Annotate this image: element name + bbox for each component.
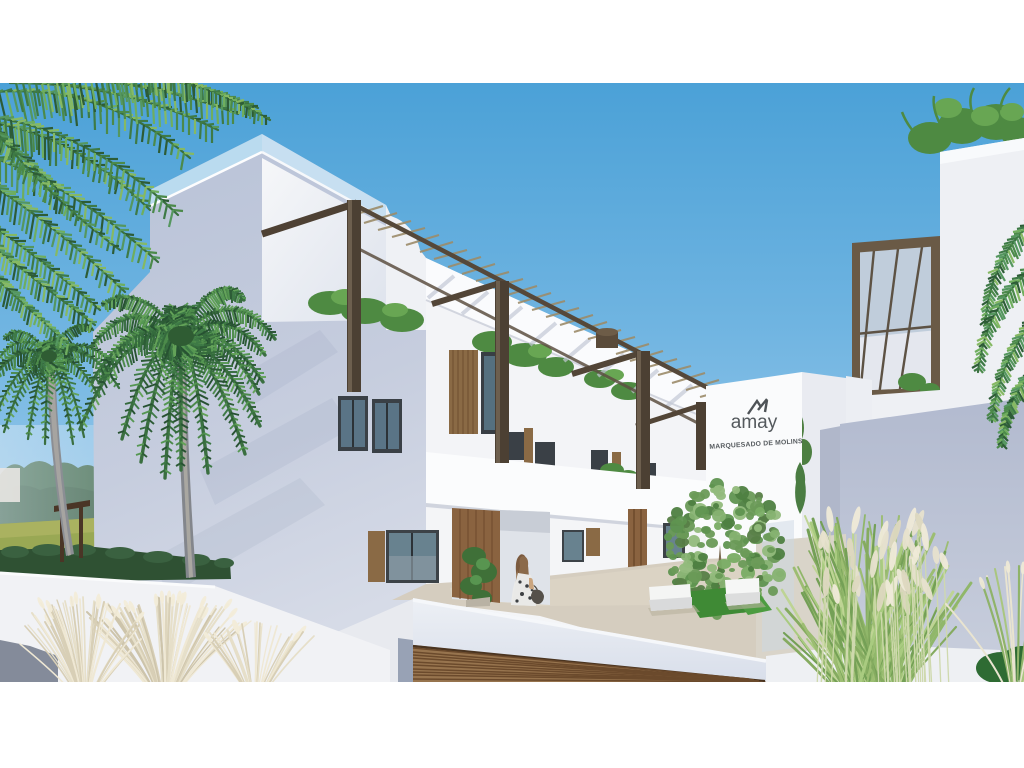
svg-text:amay: amay xyxy=(731,412,778,433)
